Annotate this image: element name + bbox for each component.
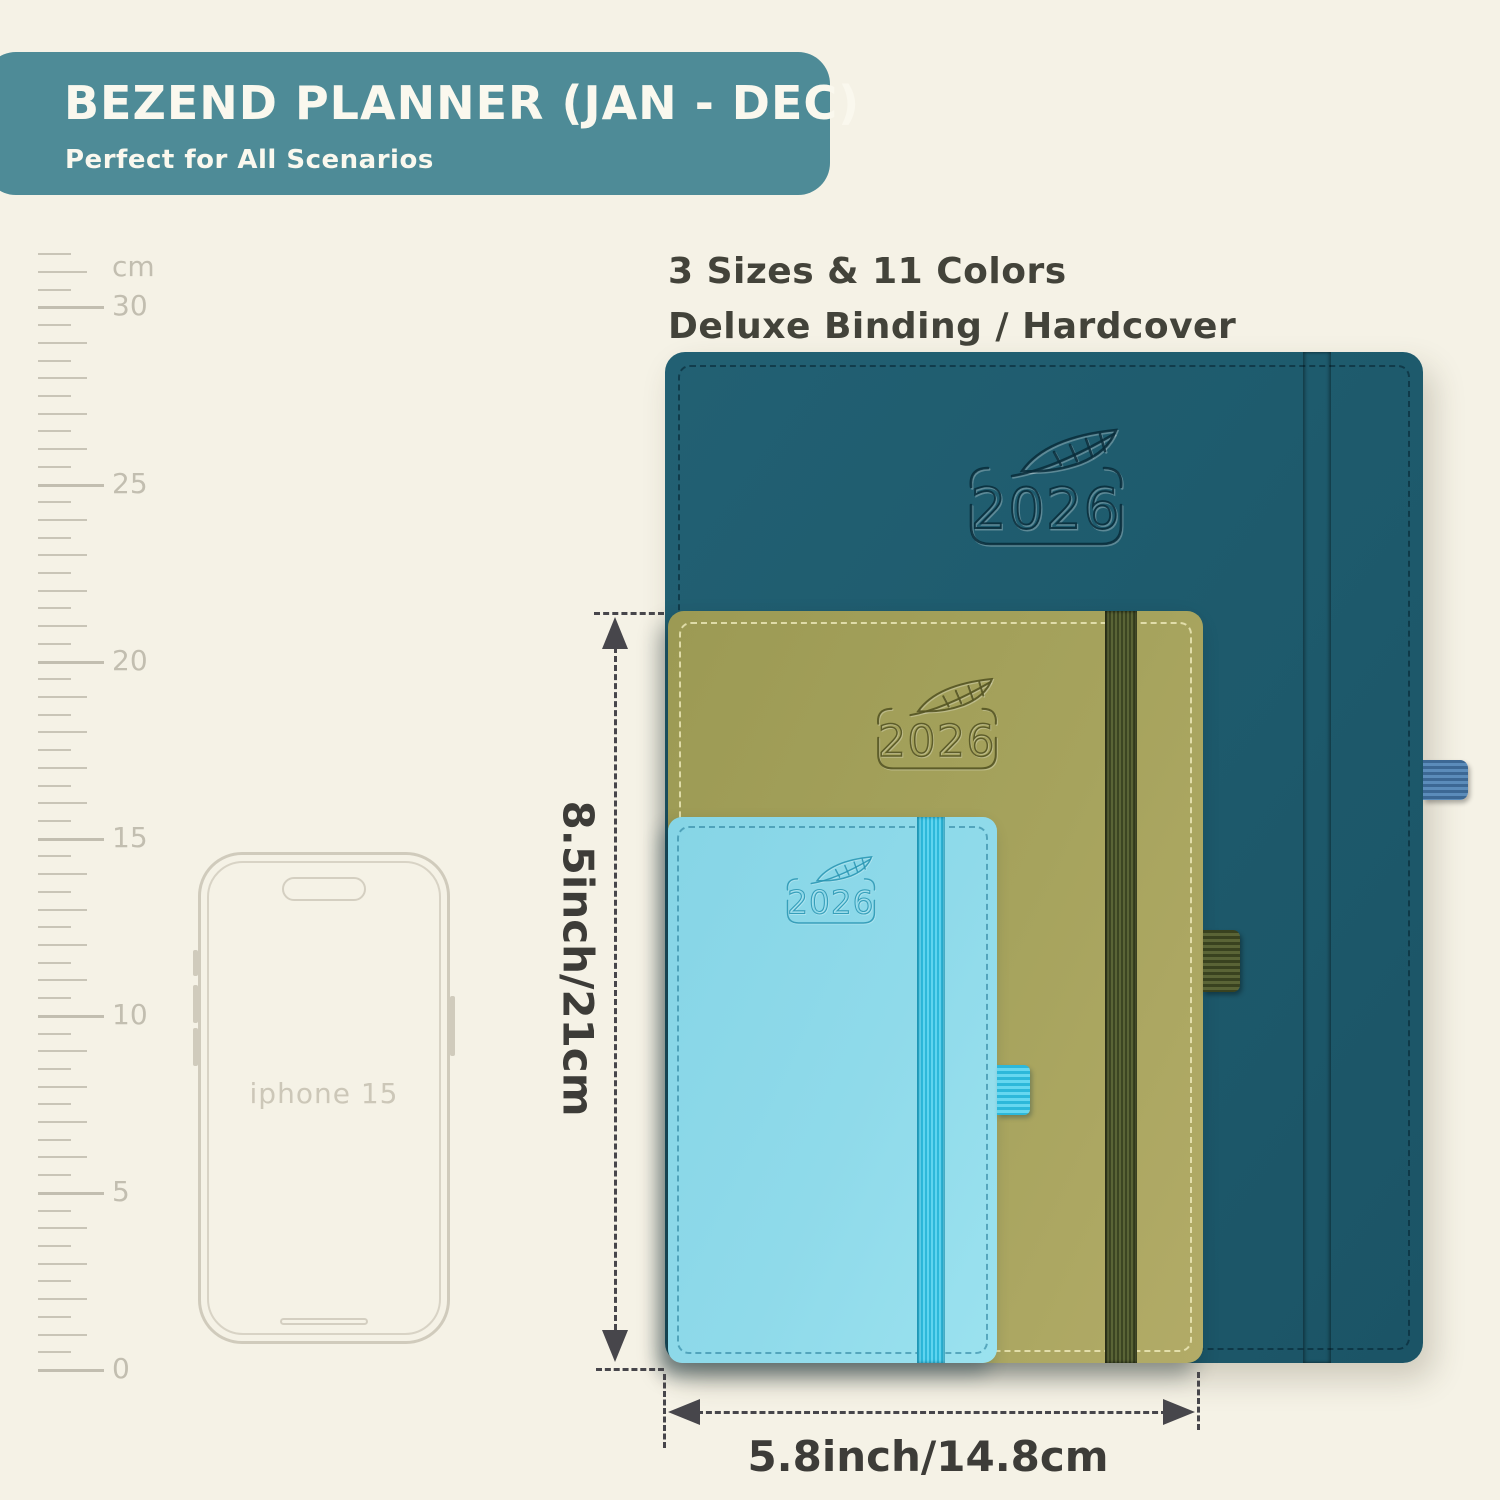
ruler-tick xyxy=(38,448,87,450)
ruler-tick xyxy=(38,1156,87,1158)
ruler-label-25: 25 xyxy=(112,467,148,501)
ruler-tick xyxy=(38,1280,71,1282)
ruler-tick xyxy=(38,838,104,841)
width-dim-label: 5.8inch/14.8cm xyxy=(728,1432,1128,1481)
height-dim-line xyxy=(614,647,617,1330)
width-dim-line xyxy=(697,1411,1167,1414)
ruler-tick xyxy=(38,785,71,787)
ruler-tick xyxy=(38,430,71,432)
ruler-tick xyxy=(38,1316,71,1318)
planner-small: 2026 xyxy=(668,817,997,1363)
ruler-tick xyxy=(38,1086,87,1088)
ruler-tick xyxy=(38,1351,71,1353)
ruler-label-10: 10 xyxy=(112,998,148,1032)
elastic-band xyxy=(1105,611,1137,1363)
ruler-tick xyxy=(38,696,87,698)
ruler-tick xyxy=(38,1192,104,1195)
ruler-tick xyxy=(38,1033,71,1035)
ruler-tick xyxy=(38,324,71,326)
ruler-tick xyxy=(38,1227,87,1229)
ruler-tick xyxy=(38,731,87,733)
ruler-tick xyxy=(38,944,87,946)
ruler-tick xyxy=(38,926,71,928)
ruler-tick xyxy=(38,590,87,592)
planner-logo: 2026 xyxy=(958,425,1134,551)
ruler-tick xyxy=(38,1334,87,1336)
ruler-tick xyxy=(38,661,104,664)
headline-sizes-colors: 3 Sizes & 11 Colors xyxy=(668,244,1236,299)
ruler-tick xyxy=(38,1245,71,1247)
ruler-label-5: 5 xyxy=(112,1175,130,1209)
planner-logo: 2026 xyxy=(780,854,882,927)
ruler-tick xyxy=(38,643,71,645)
ruler-tick xyxy=(38,537,71,539)
ruler-tick xyxy=(38,1068,71,1070)
phone-volume-up-button xyxy=(193,985,198,1023)
ruler-tick xyxy=(38,484,104,487)
width-dim-arrow-left xyxy=(668,1399,700,1425)
ruler-tick xyxy=(38,501,71,503)
ruler-tick xyxy=(38,1015,104,1018)
height-dim-arrow-down xyxy=(602,1330,628,1362)
height-dim-arrow-up xyxy=(602,617,628,649)
ruler-tick xyxy=(38,1121,87,1123)
ruler-tick xyxy=(38,625,87,627)
phone-power-button xyxy=(450,996,455,1056)
ruler-tick xyxy=(38,289,71,291)
ruler-tick xyxy=(38,891,71,893)
ruler-tick xyxy=(38,873,87,875)
ruler-label-cm: cm xyxy=(112,250,155,284)
ruler-tick xyxy=(38,979,87,981)
ruler-tick xyxy=(38,678,71,680)
height-dim-bottom-tick xyxy=(596,1368,664,1371)
ruler-tick xyxy=(38,572,71,574)
phone-volume-down-button xyxy=(193,1028,198,1066)
dynamic-island xyxy=(282,877,366,901)
ruler-tick xyxy=(38,360,71,362)
elastic-band xyxy=(917,817,945,1363)
ruler-tick xyxy=(38,377,87,379)
ruler-tick xyxy=(38,466,71,468)
ruler-tick xyxy=(38,554,87,556)
pen-loop xyxy=(997,1065,1030,1115)
ruler-label-30: 30 xyxy=(112,289,148,323)
ruler-tick xyxy=(38,1103,71,1105)
ruler-tick xyxy=(38,714,71,716)
ruler-tick xyxy=(38,802,87,804)
ruler-tick xyxy=(38,997,71,999)
phone-mute-button xyxy=(193,950,198,976)
ruler-tick xyxy=(38,1050,87,1052)
elastic-band xyxy=(1303,352,1331,1363)
width-dim-arrow-right xyxy=(1163,1399,1195,1425)
ruler-tick xyxy=(38,962,71,964)
ruler-tick xyxy=(38,855,71,857)
ruler-tick xyxy=(38,1263,87,1265)
headline: 3 Sizes & 11 Colors Deluxe Binding / Har… xyxy=(668,244,1236,354)
headline-binding: Deluxe Binding / Hardcover xyxy=(668,299,1236,354)
ruler: cm302520151050 xyxy=(0,0,220,1500)
ruler-label-0: 0 xyxy=(112,1352,130,1386)
ruler-tick xyxy=(38,253,71,255)
ruler-label-20: 20 xyxy=(112,644,148,678)
ruler-tick xyxy=(38,749,71,751)
product-image: BEZEND PLANNER (JAN - DEC) Perfect for A… xyxy=(0,0,1500,1500)
phone-speaker xyxy=(280,1318,368,1325)
ruler-tick xyxy=(38,306,104,309)
ruler-tick xyxy=(38,607,71,609)
ruler-label-15: 15 xyxy=(112,821,148,855)
ruler-tick xyxy=(38,1174,71,1176)
phone-outline: iphone 15 xyxy=(198,852,450,1344)
ruler-tick xyxy=(38,342,87,344)
ruler-tick xyxy=(38,1139,71,1141)
planner-logo: 2026 xyxy=(868,675,1006,774)
ruler-tick xyxy=(38,413,87,415)
ruler-tick xyxy=(38,395,71,397)
ruler-tick xyxy=(38,1298,87,1300)
width-dim-left-tick xyxy=(663,1374,666,1448)
ruler-tick xyxy=(38,1369,104,1372)
ruler-tick xyxy=(38,271,87,273)
ruler-tick xyxy=(38,1210,71,1212)
height-dim-top-tick xyxy=(594,612,664,615)
phone-label: iphone 15 xyxy=(201,1077,447,1110)
ruler-tick xyxy=(38,767,87,769)
width-dim-right-tick xyxy=(1197,1372,1200,1430)
ruler-tick xyxy=(38,909,87,911)
ruler-tick xyxy=(38,820,71,822)
pen-loop xyxy=(1423,760,1468,800)
ruler-tick xyxy=(38,519,87,521)
height-dim-label: 8.5inch/21cm xyxy=(554,759,603,1159)
pen-loop xyxy=(1203,930,1240,992)
